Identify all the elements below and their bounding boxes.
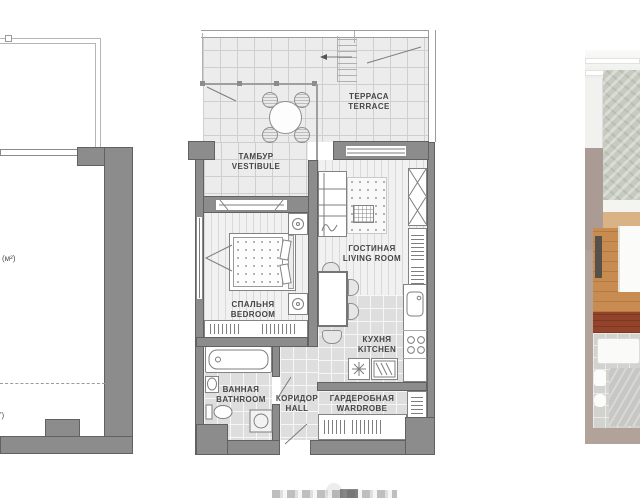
wall-segment [188, 141, 215, 160]
railing-post [274, 81, 279, 86]
kitchen-label-ru: КУХНЯ [358, 335, 396, 345]
kitchen-sink-cabinet [371, 358, 398, 380]
render-red-strip [593, 312, 640, 333]
wall-bottom [310, 440, 408, 455]
terrace-wall-right [428, 30, 436, 142]
wardrobe-rail-hatch [352, 420, 382, 434]
counter-divider [403, 358, 427, 359]
wall-right [427, 142, 435, 455]
wardrobe-unit [408, 168, 427, 226]
living-room-label-ru: ГОСТИНАЯ [343, 244, 401, 254]
closet-rail-hatch [210, 324, 240, 334]
render-dark-unit [595, 236, 602, 278]
vestibule-label-en: VESTIBULE [232, 162, 281, 172]
terrace-round-table [269, 101, 302, 134]
railing-post [237, 81, 242, 86]
wall-bottom [226, 440, 280, 455]
hall-label-en: HALL [276, 404, 318, 414]
hall-floor [280, 346, 318, 440]
terrace-label: ТЕРРАСА TERRACE [348, 92, 389, 111]
wardrobe-label: ГАРДЕРОБНАЯ WARDROBE [330, 394, 395, 413]
sofa [318, 171, 347, 237]
vestibule-label: ТАМБУР VESTIBULE [232, 152, 281, 171]
bedroom-label-en: BEDROOM [231, 310, 276, 320]
bedroom-label-ru: СПАЛЬНЯ [231, 300, 276, 310]
bathroom-label-ru: ВАННАЯ [216, 385, 266, 395]
wall-bathroom-right [272, 346, 280, 377]
terrace-railing [203, 83, 317, 85]
nightstand [288, 293, 308, 315]
render-beam [585, 58, 640, 64]
hall-label-ru: КОРИДОР [276, 394, 318, 404]
wardrobe-label-en: WARDROBE [330, 404, 395, 414]
bedroom-window [196, 216, 203, 300]
bathroom-label-en: BATHROOM [216, 395, 266, 405]
terrace-wall-left [202, 33, 203, 84]
nightstand [288, 213, 308, 235]
living-room-label: ГОСТИНАЯ LIVING ROOM [343, 244, 401, 263]
living-room-label-en: LIVING ROOM [343, 254, 401, 264]
kitchen-counter [403, 284, 427, 382]
entry-window [215, 199, 288, 211]
bedroom-label: СПАЛЬНЯ BEDROOM [231, 300, 276, 319]
coffee-table [353, 205, 374, 223]
render-shower-tile [609, 368, 640, 426]
wall-wardrobe-top [317, 382, 427, 391]
wall-bathroom-top [196, 337, 308, 347]
caption-fragment [272, 490, 397, 498]
wall-corner-block [196, 424, 228, 455]
render-white-column [585, 78, 603, 148]
dining-table [317, 271, 348, 327]
vestibule-boundary [316, 84, 318, 160]
render-taupe-border-left [585, 250, 593, 444]
terrace-label-en: TERRACE [348, 102, 389, 112]
wall-corner-block [405, 417, 435, 455]
closet-rail-hatch [262, 324, 296, 334]
counter-divider [403, 330, 427, 331]
terrace-stairs [337, 36, 357, 82]
main-floor-plan: ТЕРРАСА TERRACE ТАМБУР VESTIBULE ГОСТИНА… [0, 0, 640, 498]
kitchen-label-en: KITCHEN [358, 345, 396, 355]
render-taupe-border-bottom [585, 428, 640, 444]
render-concrete-wall [603, 70, 640, 210]
render-bed [618, 226, 640, 292]
bathtub [205, 346, 272, 373]
wardrobe-rail-hatch [324, 420, 346, 434]
wall-bedroom-living [308, 160, 318, 347]
bathroom-label: ВАННАЯ BATHROOM [216, 385, 266, 404]
hall-label: КОРИДОР HALL [276, 394, 318, 413]
wardrobe-label-ru: ГАРДЕРОБНАЯ [330, 394, 395, 404]
railing-post [200, 81, 205, 86]
render-toilet [594, 394, 606, 407]
terrace-wall-top [201, 30, 434, 38]
render-bathtub [597, 338, 640, 364]
render-3d-preview [585, 50, 640, 444]
render-shelf [603, 200, 640, 212]
caption-fragment-dark [340, 489, 358, 498]
render-sink [594, 370, 606, 386]
vestibule-label-ru: ТАМБУР [232, 152, 281, 162]
shelf-hatch [411, 232, 424, 260]
living-room-window [345, 145, 407, 157]
kitchen-base-cabinet [348, 358, 370, 380]
floor-plan-screenshot: (м²) ') [0, 0, 640, 498]
kitchen-label: КУХНЯ KITCHEN [358, 335, 396, 354]
mattress [233, 237, 283, 287]
terrace-label-ru: ТЕРРАСА [348, 92, 389, 102]
